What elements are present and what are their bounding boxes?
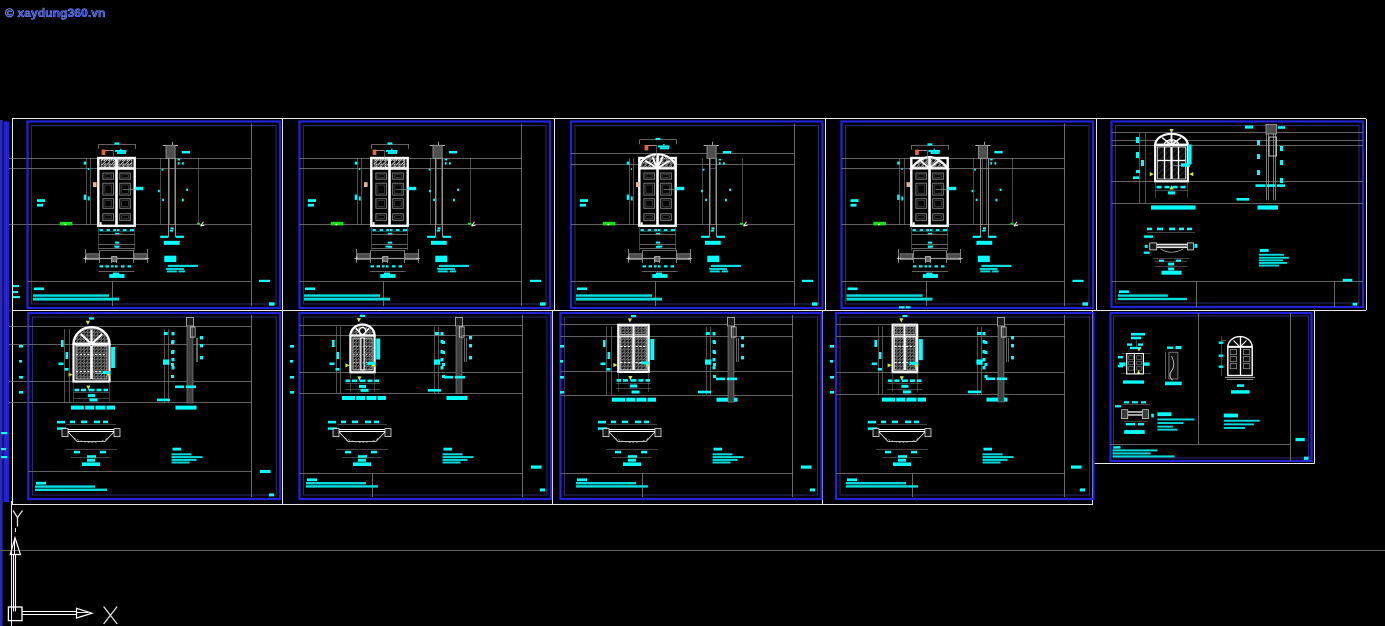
- svg-text:© xaydung360.vn: © xaydung360.vn: [5, 6, 105, 20]
